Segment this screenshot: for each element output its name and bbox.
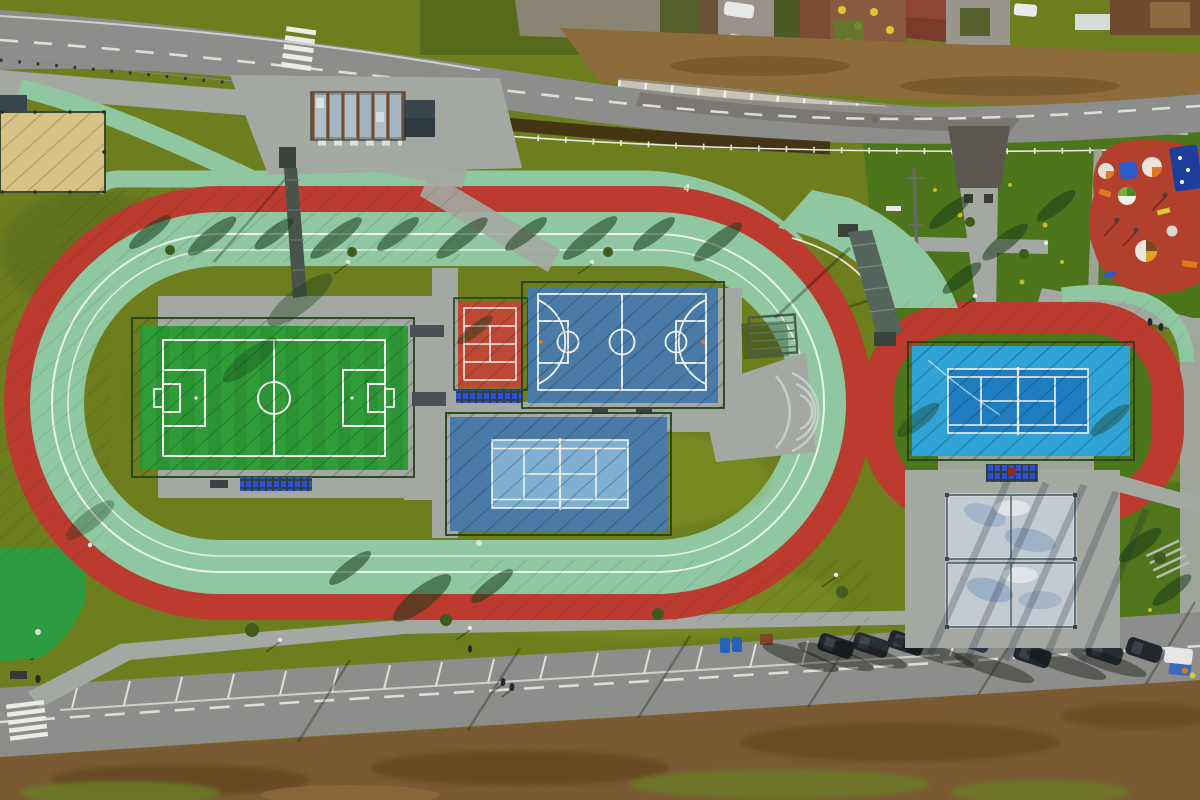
sand-court [0,110,106,194]
stadium-seats [456,390,522,403]
basketball-court [522,282,724,414]
bench [412,392,446,406]
picnic-table [10,671,27,679]
soccer-benches [240,477,312,491]
scene-canvas: 4 [0,0,1200,800]
entrance-driveway [948,126,1010,190]
soccer-field [132,318,446,491]
white-bench [886,206,901,211]
bench [410,325,444,337]
gate-pillar [984,194,993,203]
red-mini-court [454,298,528,403]
tennis-court-center [446,413,671,546]
aerial-sports-park-photo: 4 [0,0,1200,800]
